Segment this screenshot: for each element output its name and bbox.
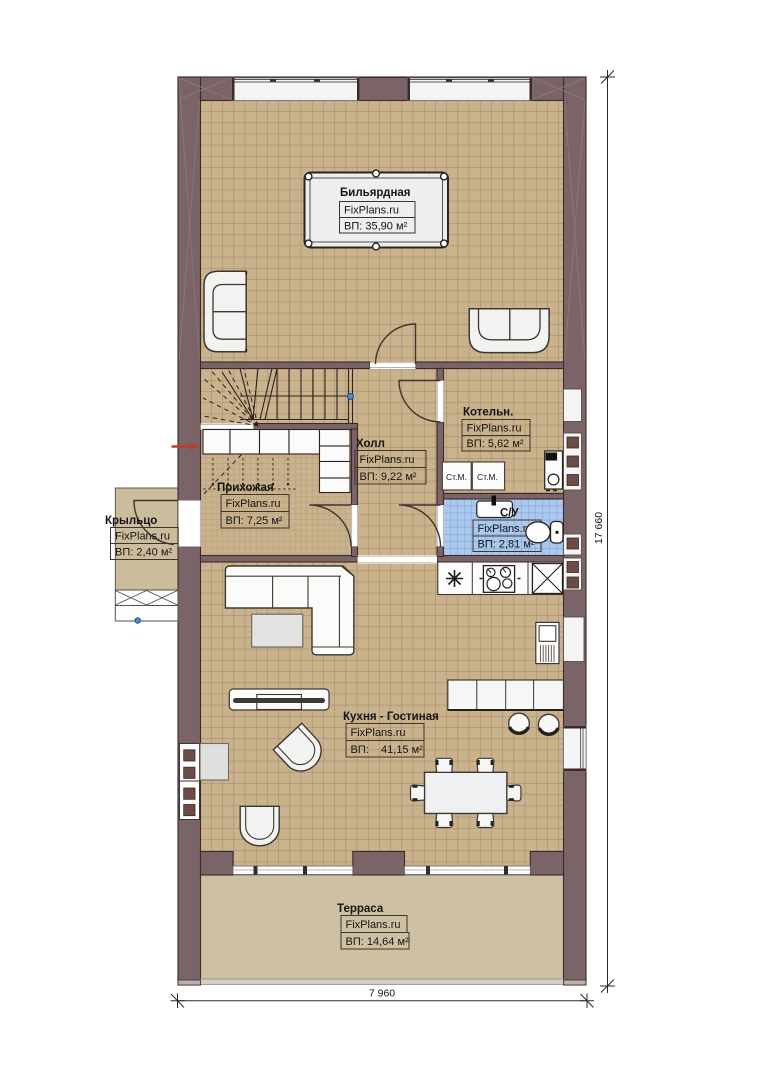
svg-text:С/У: С/У	[500, 508, 520, 520]
svg-text:Прихожая: Прихожая	[217, 482, 274, 494]
svg-text:ВП: 5,62 м²: ВП: 5,62 м²	[467, 438, 524, 450]
svg-text:FixPlans.ru: FixPlans.ru	[226, 498, 281, 510]
svg-text:Котельн.: Котельн.	[463, 407, 513, 419]
svg-text:Крыльцо: Крыльцо	[105, 515, 157, 527]
svg-text:Кухня - Гостиная: Кухня - Гостиная	[343, 711, 439, 723]
svg-text:Терраса: Терраса	[337, 903, 384, 915]
svg-text:FixPlans.ru: FixPlans.ru	[478, 523, 533, 535]
svg-text:ВП: 14,64 м²: ВП: 14,64 м²	[346, 936, 410, 948]
svg-text:ВП: 7,25 м²: ВП: 7,25 м²	[226, 515, 283, 527]
svg-text:Ст.М.: Ст.М.	[477, 472, 498, 482]
svg-text:Холл: Холл	[356, 438, 385, 450]
svg-text:Бильярдная: Бильярдная	[340, 187, 411, 199]
svg-text:FixPlans.ru: FixPlans.ru	[467, 423, 522, 435]
svg-text:ВП: 35,90 м²: ВП: 35,90 м²	[344, 221, 408, 233]
svg-text:ВП: 41,15 м²: ВП: 41,15 м²	[351, 744, 424, 756]
svg-text:FixPlans.ru: FixPlans.ru	[351, 727, 406, 739]
svg-text:ВП: 2,81 м²: ВП: 2,81 м²	[478, 539, 535, 551]
svg-text:FixPlans.ru: FixPlans.ru	[115, 531, 170, 543]
svg-text:ВП: 9,22 м²: ВП: 9,22 м²	[360, 471, 417, 483]
svg-text:7 960: 7 960	[369, 988, 395, 1000]
svg-text:17 660: 17 660	[593, 512, 605, 544]
svg-text:Ст.М.: Ст.М.	[446, 472, 467, 482]
svg-text:FixPlans.ru: FixPlans.ru	[346, 919, 401, 931]
svg-text:ВП: 2,40 м²: ВП: 2,40 м²	[115, 547, 172, 559]
svg-text:FixPlans.ru: FixPlans.ru	[344, 205, 399, 217]
svg-text:FixPlans.ru: FixPlans.ru	[360, 454, 415, 466]
